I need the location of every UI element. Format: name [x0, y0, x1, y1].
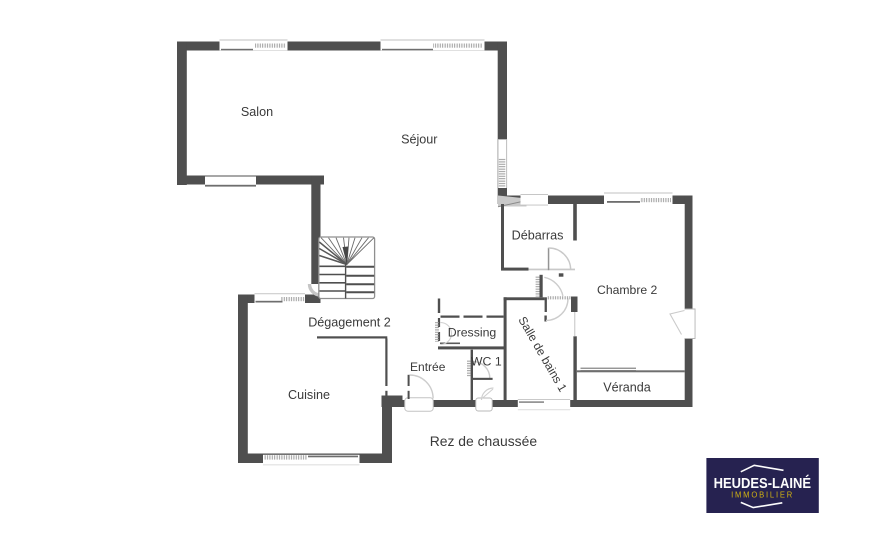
svg-text:WC 1: WC 1: [471, 355, 502, 369]
svg-text:Débarras: Débarras: [512, 229, 564, 243]
svg-text:Dressing: Dressing: [448, 326, 497, 340]
svg-text:Rez de chaussée: Rez de chaussée: [430, 433, 538, 449]
svg-text:Entrée: Entrée: [410, 360, 446, 374]
svg-text:Véranda: Véranda: [603, 381, 651, 395]
svg-text:Cuisine: Cuisine: [288, 388, 330, 402]
svg-text:IMMOBILIER: IMMOBILIER: [731, 490, 794, 500]
svg-text:Salon: Salon: [241, 105, 273, 119]
svg-text:Chambre 2: Chambre 2: [597, 283, 658, 297]
svg-text:Dégagement 2: Dégagement 2: [308, 315, 391, 329]
svg-text:Séjour: Séjour: [401, 133, 437, 147]
